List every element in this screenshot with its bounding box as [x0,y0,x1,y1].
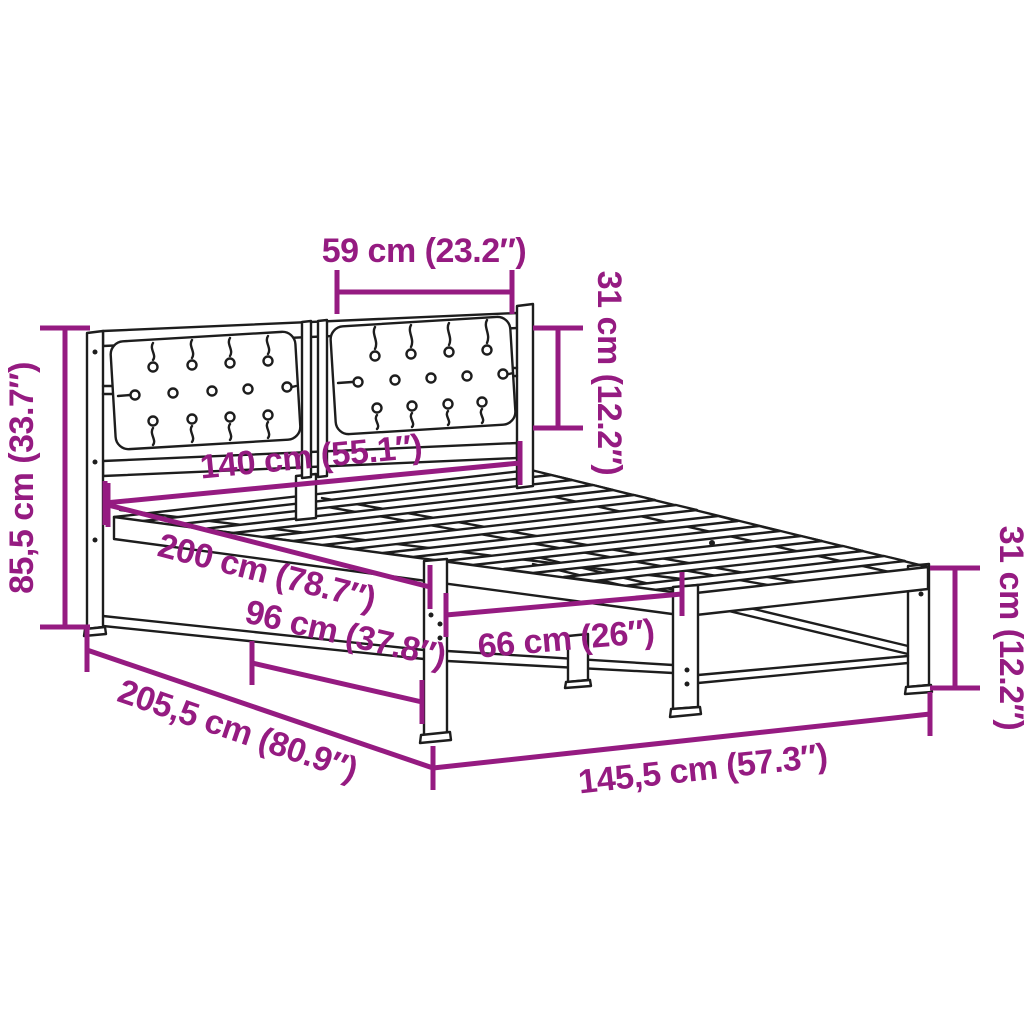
dim-headboard-height: 85,5 cm (33.7″) [3,328,90,627]
dim-leg-height-label: 31 cm (12.2″) [992,526,1024,730]
bed-frame-diagram: 59 cm (23.2″) 31 cm (12.2″) 85,5 cm (33.… [0,0,1024,1024]
dim-headboard-height-label: 85,5 cm (33.7″) [3,362,41,594]
dim-cushion-width: 59 cm (23.2″) [322,232,526,314]
leg-foot-front [670,585,701,717]
cushion-left [110,331,301,450]
dim-cushion-width-label: 59 cm (23.2″) [322,232,526,270]
cushion-right [330,316,516,435]
dim-clearance-foot-label: 66 cm (26″) [476,612,656,665]
dim-leg-height: 31 cm (12.2″) [930,526,1024,730]
dim-cushion-height: 31 cm (12.2″) [533,271,628,475]
dim-cushion-height-label: 31 cm (12.2″) [590,271,628,475]
product-dimension-diagram: 59 cm (23.2″) 31 cm (12.2″) 85,5 cm (33.… [0,0,1024,1024]
dim-clearance-head: 96 cm (37.8″) [242,593,450,724]
